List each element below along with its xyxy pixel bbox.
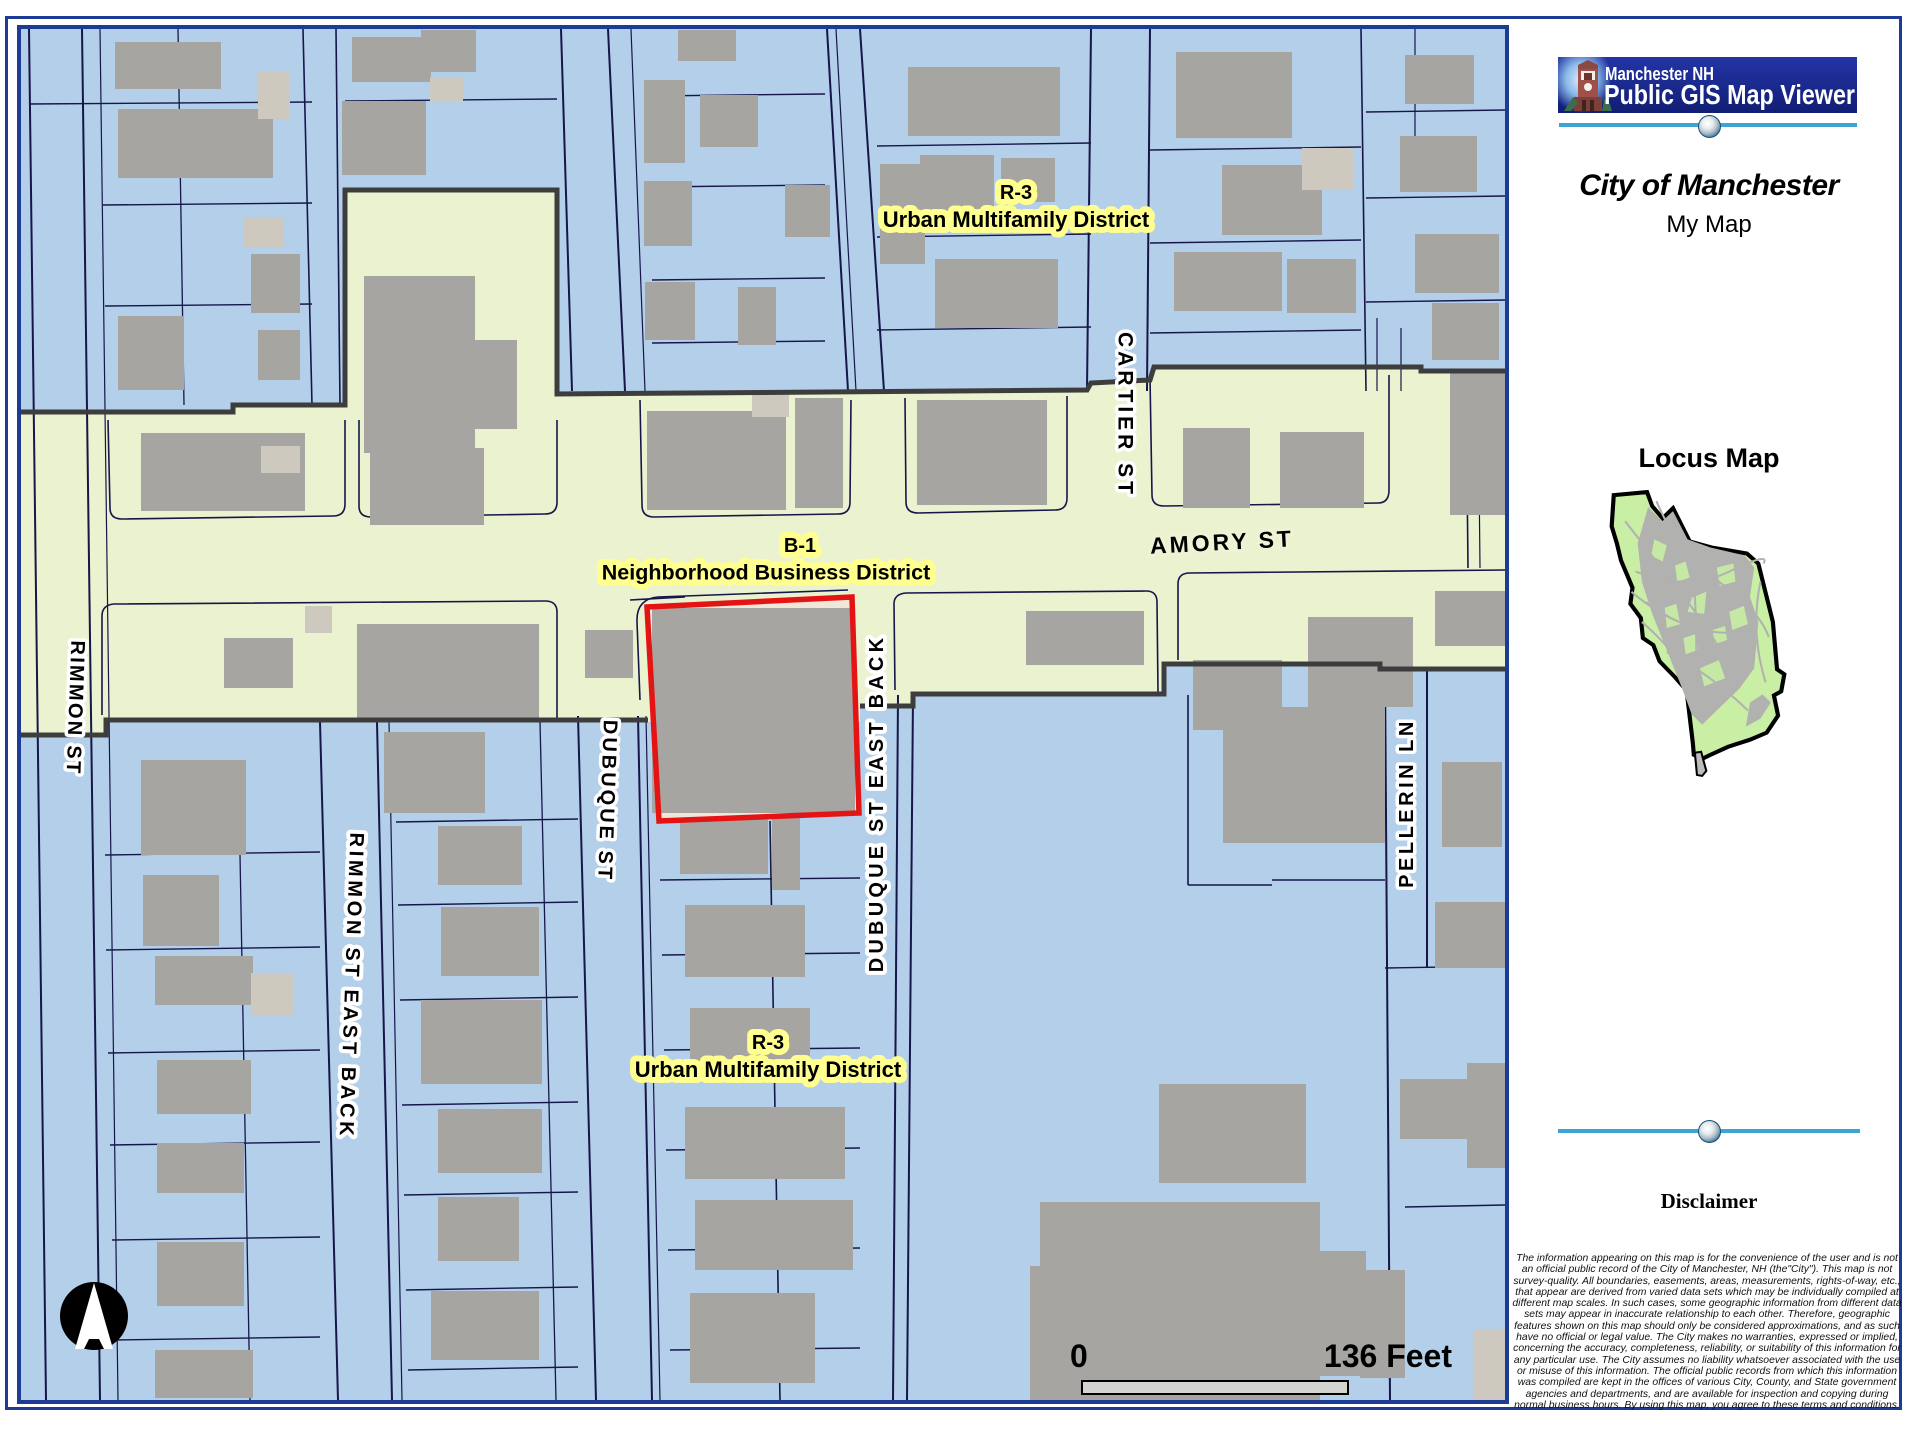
svg-text:Neighborhood Business District: Neighborhood Business District [602,561,931,585]
svg-text:PELLERIN LN: PELLERIN LN [1396,718,1418,888]
svg-text:Public GIS Map Viewer: Public GIS Map Viewer [1604,79,1855,110]
svg-text:B-1: B-1 [784,535,816,557]
svg-text:RIMMON ST: RIMMON ST [62,640,89,776]
svg-text:DUBUQUE ST EAST BACK: DUBUQUE ST EAST BACK [866,634,888,972]
svg-text:R-3: R-3 [752,1032,784,1054]
svg-text:R-3: R-3 [1000,182,1032,204]
svg-text:CARTIER ST: CARTIER ST [1114,332,1137,498]
svg-text:Urban Multifamily District: Urban Multifamily District [883,207,1150,232]
svg-text:0: 0 [1070,1338,1088,1374]
svg-text:Urban Multifamily District: Urban Multifamily District [635,1057,902,1082]
svg-text:136 Feet: 136 Feet [1324,1338,1452,1374]
